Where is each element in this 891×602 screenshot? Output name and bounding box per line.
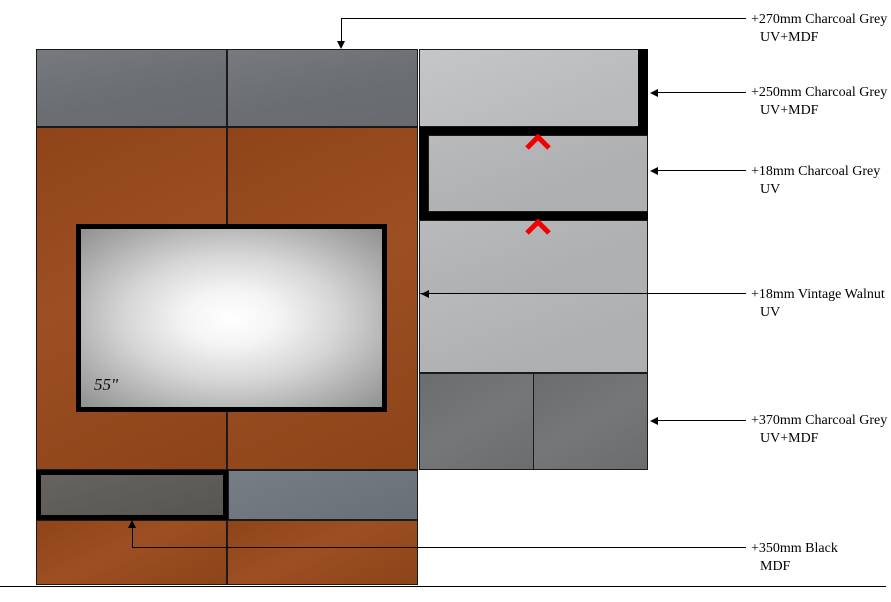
arrowhead-270mm-icon [337,41,345,49]
tv-size-label: 55" [94,375,118,395]
arrowhead-18mm-walnut-icon [421,290,429,298]
annotation-350mm: +350mm Black MDF [751,540,889,576]
arrowhead-18mm-charcoal-icon [650,167,658,175]
annotation-250mm-line2: UV+MDF [751,102,889,120]
annotation-18mm-walnut: +18mm Vintage Walnut UV [751,286,889,322]
top-charcoal-panel-left [36,49,227,127]
tv-screen: 55" [76,224,387,412]
top-charcoal-panel-right [227,49,418,127]
bottom-charcoal-panel-right [533,373,648,470]
leader-370mm [652,420,746,421]
annotation-350mm-line1: +350mm Black [751,540,889,558]
leader-350mm-riser [132,527,133,547]
annotation-250mm-line1: +250mm Charcoal Grey [751,84,889,102]
black-mdf-framed-panel [36,470,228,520]
chevron-up-icon [524,219,552,235]
floor-line [0,586,886,587]
annotation-270mm: +270mm Charcoal Grey UV+MDF [751,11,889,47]
leader-18mm-charcoal [652,170,746,171]
arrowhead-250mm-icon [650,89,658,97]
leader-270mm [341,18,746,19]
annotation-18mm-charcoal-line2: UV [751,181,889,199]
leader-350mm [132,547,746,548]
annotation-370mm-line2: UV+MDF [751,430,889,448]
elevation-drawing: 55" +270mm Charcoal Grey UV+MDF [0,0,891,602]
annotation-350mm-line2: MDF [751,558,889,576]
leader-18mm-walnut [421,293,746,294]
annotation-250mm: +250mm Charcoal Grey UV+MDF [751,84,889,120]
black-mdf-panel-face [41,475,223,515]
right-panel-270mm [419,49,648,127]
annotation-370mm-line1: +370mm Charcoal Grey [751,412,889,430]
arrowhead-350mm-icon [128,520,136,528]
right-panel-lower-mid [419,293,648,373]
leader-270mm-drop [341,18,342,43]
annotation-18mm-walnut-line2: UV [751,304,889,322]
annotation-18mm-walnut-line1: +18mm Vintage Walnut [751,286,889,304]
annotation-18mm-charcoal-line1: +18mm Charcoal Grey [751,163,889,181]
walnut-panel-lower-right [227,520,418,585]
annotation-270mm-line2: UV+MDF [751,29,889,47]
leader-250mm [652,92,746,93]
annotation-18mm-charcoal: +18mm Charcoal Grey UV [751,163,889,199]
chevron-up-icon [524,134,552,150]
bottom-charcoal-panel-left [419,373,534,470]
panel-250-right-edge-band [638,49,648,135]
arrowhead-370mm-icon [650,417,658,425]
grey-strip-panel [228,470,418,520]
annotation-370mm: +370mm Charcoal Grey UV+MDF [751,412,889,448]
panel-250-left-edge-band [419,135,428,212]
annotation-270mm-line1: +270mm Charcoal Grey [751,11,889,29]
